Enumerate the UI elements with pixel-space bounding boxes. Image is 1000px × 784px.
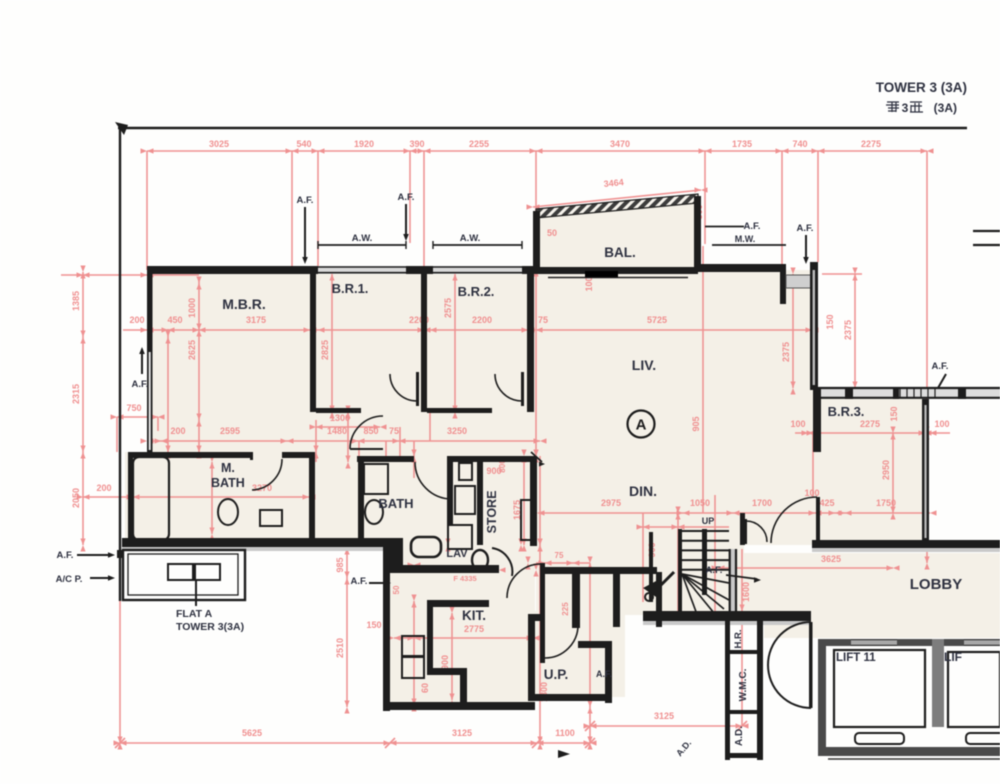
svg-text:A.F.: A.F. bbox=[398, 192, 415, 203]
svg-text:2975: 2975 bbox=[601, 498, 621, 508]
svg-text:3470: 3470 bbox=[610, 139, 630, 149]
svg-text:75: 75 bbox=[555, 551, 564, 560]
svg-text:A.W.: A.W. bbox=[352, 233, 373, 244]
svg-text:75: 75 bbox=[389, 426, 399, 436]
svg-text:450: 450 bbox=[167, 315, 182, 325]
svg-text:M.B.R.: M.B.R. bbox=[222, 296, 266, 312]
svg-text:150: 150 bbox=[366, 620, 381, 630]
svg-text:A.F.: A.F. bbox=[351, 576, 368, 587]
svg-text:1600: 1600 bbox=[741, 582, 751, 602]
svg-text:A: A bbox=[636, 417, 647, 434]
svg-text:50: 50 bbox=[547, 228, 557, 238]
svg-text:2375: 2375 bbox=[843, 320, 853, 340]
svg-text:1920: 1920 bbox=[354, 139, 374, 149]
svg-text:1050: 1050 bbox=[690, 498, 710, 508]
svg-text:200: 200 bbox=[96, 483, 111, 493]
svg-text:2315: 2315 bbox=[71, 384, 81, 404]
svg-text:F 4335: F 4335 bbox=[453, 574, 476, 583]
svg-text:2275: 2275 bbox=[860, 419, 880, 429]
svg-text:225: 225 bbox=[561, 602, 570, 616]
svg-text:B.R.3.: B.R.3. bbox=[828, 404, 865, 419]
svg-text:2595: 2595 bbox=[220, 426, 240, 436]
svg-text:BATH: BATH bbox=[211, 476, 245, 490]
svg-text:50: 50 bbox=[392, 585, 401, 594]
svg-text:3175: 3175 bbox=[246, 315, 266, 325]
svg-text:M.: M. bbox=[221, 461, 235, 475]
svg-text:75: 75 bbox=[538, 315, 548, 325]
svg-text:2775: 2775 bbox=[464, 624, 484, 634]
svg-text:1100: 1100 bbox=[555, 728, 575, 738]
svg-text:1385: 1385 bbox=[71, 291, 81, 311]
svg-text:UP: UP bbox=[702, 516, 715, 526]
svg-text:A.F.: A.F. bbox=[706, 565, 723, 576]
svg-text:B.R.1.: B.R.1. bbox=[332, 281, 369, 296]
svg-text:150: 150 bbox=[889, 406, 899, 421]
svg-text:3125: 3125 bbox=[452, 728, 472, 738]
svg-text:3025: 3025 bbox=[209, 139, 229, 149]
svg-text:A.F.: A.F. bbox=[132, 379, 149, 390]
svg-text:FLAT A: FLAT A bbox=[176, 608, 213, 620]
svg-text:100: 100 bbox=[934, 419, 949, 429]
svg-text:200: 200 bbox=[170, 426, 185, 436]
svg-text:A.F.: A.F. bbox=[797, 223, 814, 234]
svg-text:LOBBY: LOBBY bbox=[910, 576, 963, 593]
svg-text:LIF: LIF bbox=[944, 650, 962, 664]
svg-text:750: 750 bbox=[126, 403, 141, 413]
svg-text:BAL.: BAL. bbox=[604, 245, 636, 260]
svg-text:M.W.: M.W. bbox=[735, 234, 756, 244]
svg-text:150: 150 bbox=[825, 314, 835, 329]
svg-text:A.D.: A.D. bbox=[734, 726, 745, 746]
svg-text:100: 100 bbox=[790, 419, 805, 429]
svg-text:A.F.: A.F. bbox=[297, 195, 314, 206]
svg-text:LAV: LAV bbox=[446, 548, 468, 560]
svg-text:200: 200 bbox=[129, 315, 144, 325]
svg-text:5625: 5625 bbox=[242, 728, 262, 738]
svg-text:U.P.: U.P. bbox=[544, 667, 569, 682]
svg-text:1700: 1700 bbox=[752, 498, 772, 508]
svg-text:2950: 2950 bbox=[881, 460, 891, 480]
svg-text:1480: 1480 bbox=[327, 426, 347, 436]
svg-text:3464: 3464 bbox=[603, 177, 624, 189]
svg-text:2575: 2575 bbox=[443, 298, 453, 318]
svg-text:STORE: STORE bbox=[485, 491, 499, 534]
svg-text:905: 905 bbox=[691, 416, 701, 431]
svg-text:60: 60 bbox=[420, 683, 430, 693]
svg-text:B.R.2.: B.R.2. bbox=[458, 284, 495, 299]
svg-text:390: 390 bbox=[409, 139, 424, 149]
svg-text:A.F.: A.F. bbox=[744, 221, 761, 232]
svg-text:3125: 3125 bbox=[654, 711, 674, 721]
svg-text:1000: 1000 bbox=[187, 298, 197, 318]
svg-text:2200: 2200 bbox=[472, 315, 492, 325]
svg-text:985: 985 bbox=[335, 557, 345, 572]
svg-text:TOWER 3(3A): TOWER 3(3A) bbox=[176, 621, 244, 633]
svg-text:2375: 2375 bbox=[781, 342, 791, 362]
svg-text:3250: 3250 bbox=[447, 426, 467, 436]
svg-text:1735: 1735 bbox=[732, 139, 752, 149]
svg-text:5725: 5725 bbox=[647, 315, 667, 325]
svg-text:TOWER 3 (3A): TOWER 3 (3A) bbox=[876, 80, 967, 95]
svg-text:540: 540 bbox=[296, 139, 311, 149]
svg-text:BATH: BATH bbox=[378, 496, 413, 511]
svg-text:LIFT 11: LIFT 11 bbox=[836, 652, 876, 664]
svg-text:W.M.C.: W.M.C. bbox=[738, 668, 749, 701]
svg-text:A.F.: A.F. bbox=[932, 361, 949, 372]
svg-text:A.F.: A.F. bbox=[57, 550, 74, 561]
svg-text:3625: 3625 bbox=[821, 554, 841, 564]
svg-text:H.R.: H.R. bbox=[733, 630, 744, 649]
svg-text:100: 100 bbox=[584, 276, 594, 291]
svg-text:KIT.: KIT. bbox=[462, 608, 486, 623]
svg-text:2510: 2510 bbox=[335, 638, 345, 658]
svg-text:2255: 2255 bbox=[469, 139, 489, 149]
svg-text:A.W.: A.W. bbox=[460, 233, 481, 244]
svg-text:2275: 2275 bbox=[861, 139, 881, 149]
svg-text:2625: 2625 bbox=[187, 340, 197, 360]
svg-text:740: 740 bbox=[792, 139, 807, 149]
svg-text:3: 3 bbox=[902, 101, 909, 115]
svg-text:850: 850 bbox=[363, 426, 378, 436]
svg-text:DIN.: DIN. bbox=[629, 483, 657, 499]
svg-text:(3A): (3A) bbox=[934, 101, 957, 115]
svg-text:A/C P.: A/C P. bbox=[56, 574, 83, 585]
svg-text:LIV.: LIV. bbox=[632, 357, 656, 373]
svg-text:2825: 2825 bbox=[320, 340, 330, 360]
svg-text:425: 425 bbox=[819, 498, 834, 508]
svg-text:A.F.: A.F. bbox=[596, 669, 612, 679]
